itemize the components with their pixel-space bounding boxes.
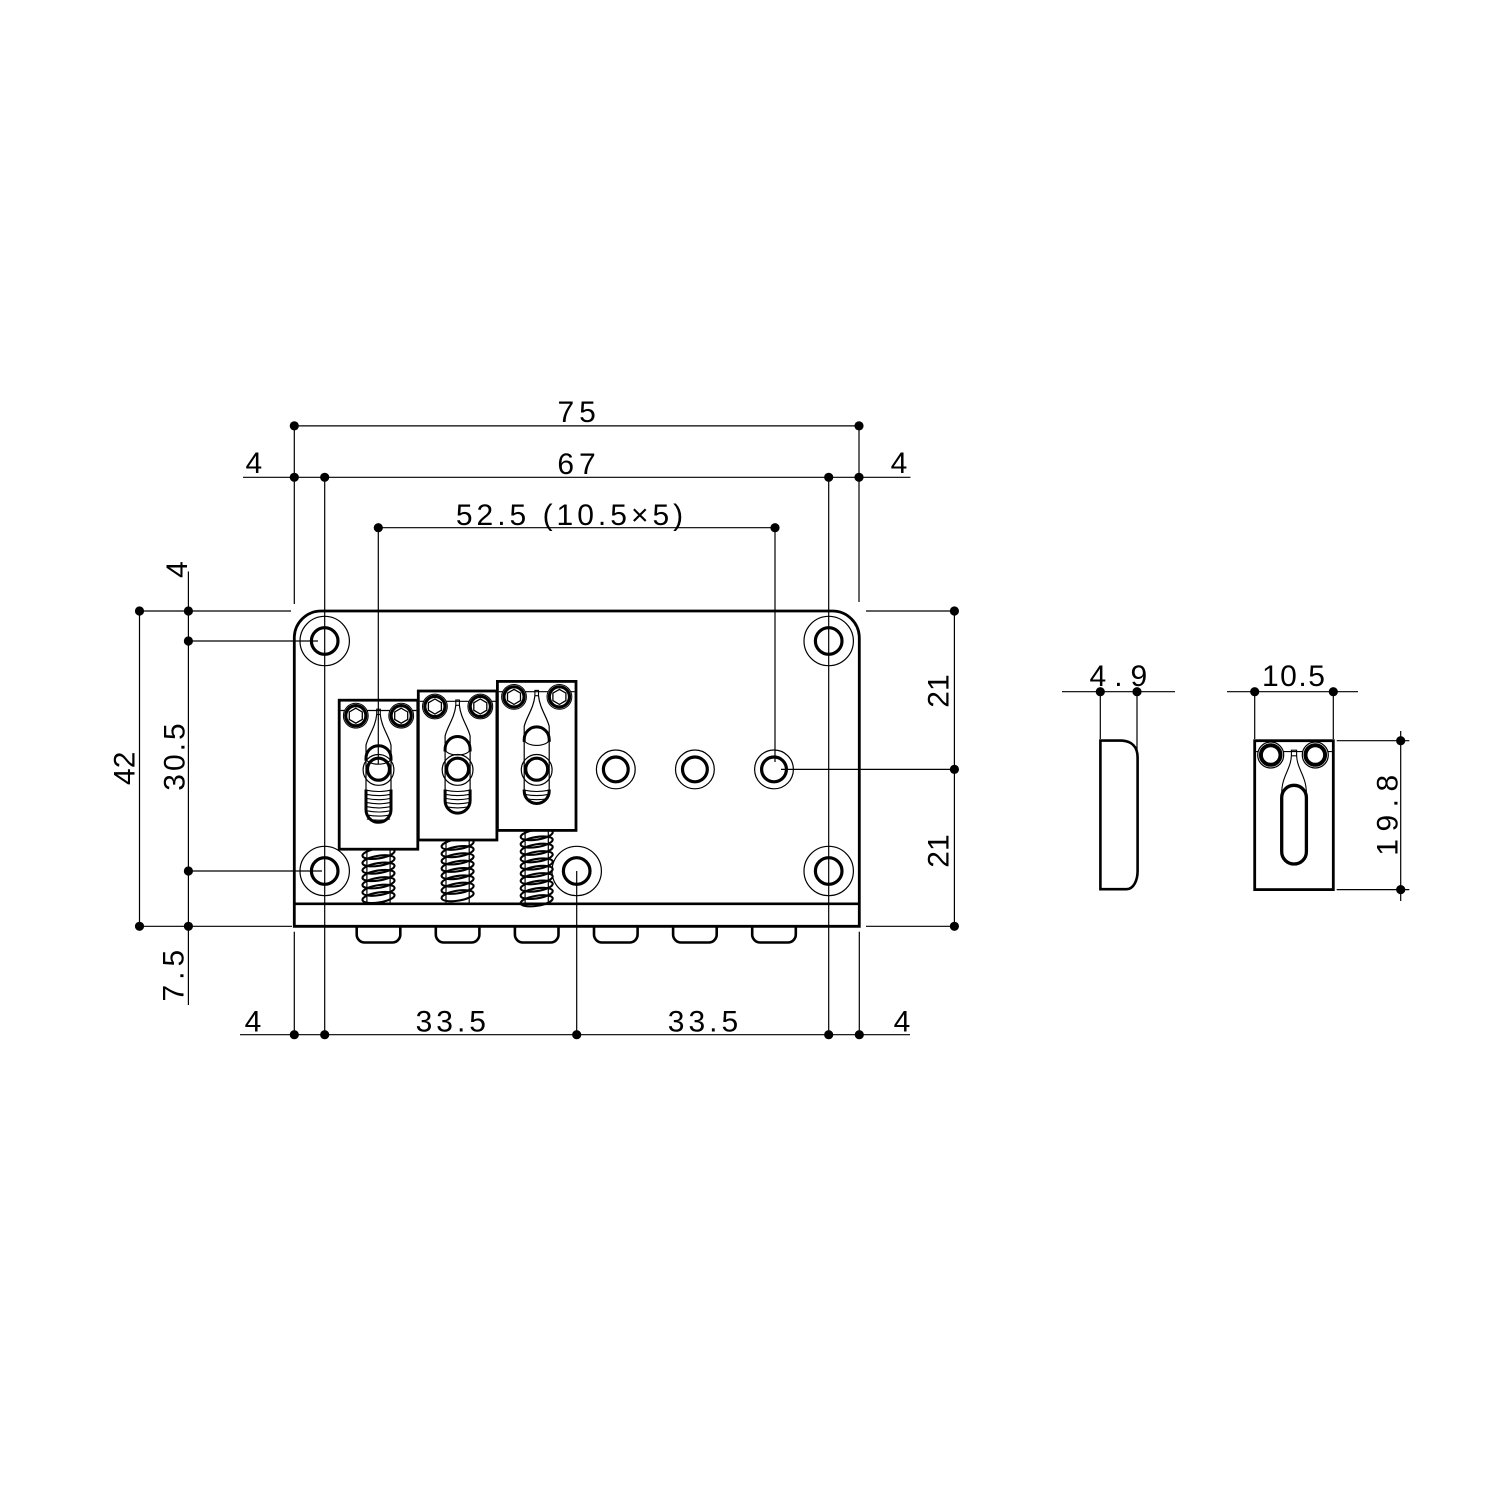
svg-text:30.5: 30.5 bbox=[159, 720, 192, 790]
svg-text:4: 4 bbox=[161, 561, 194, 578]
svg-text:4: 4 bbox=[891, 447, 908, 480]
svg-text:4: 4 bbox=[894, 1006, 911, 1039]
svg-text:33.5: 33.5 bbox=[416, 1006, 490, 1039]
svg-text:4: 4 bbox=[245, 1006, 262, 1039]
svg-text:67: 67 bbox=[557, 448, 600, 481]
svg-text:21: 21 bbox=[923, 674, 956, 707]
svg-text:21: 21 bbox=[923, 834, 956, 867]
svg-text:4.9: 4.9 bbox=[1090, 660, 1156, 693]
svg-text:42: 42 bbox=[109, 752, 142, 785]
svg-text:75: 75 bbox=[558, 396, 601, 429]
svg-text:52.5 (10.5×5): 52.5 (10.5×5) bbox=[456, 499, 687, 532]
svg-text:4: 4 bbox=[245, 447, 262, 480]
svg-text:19.8: 19.8 bbox=[1372, 767, 1405, 855]
svg-text:10.5: 10.5 bbox=[1262, 660, 1326, 693]
svg-text:7.5: 7.5 bbox=[158, 945, 191, 1002]
svg-text:33.5: 33.5 bbox=[668, 1006, 742, 1039]
